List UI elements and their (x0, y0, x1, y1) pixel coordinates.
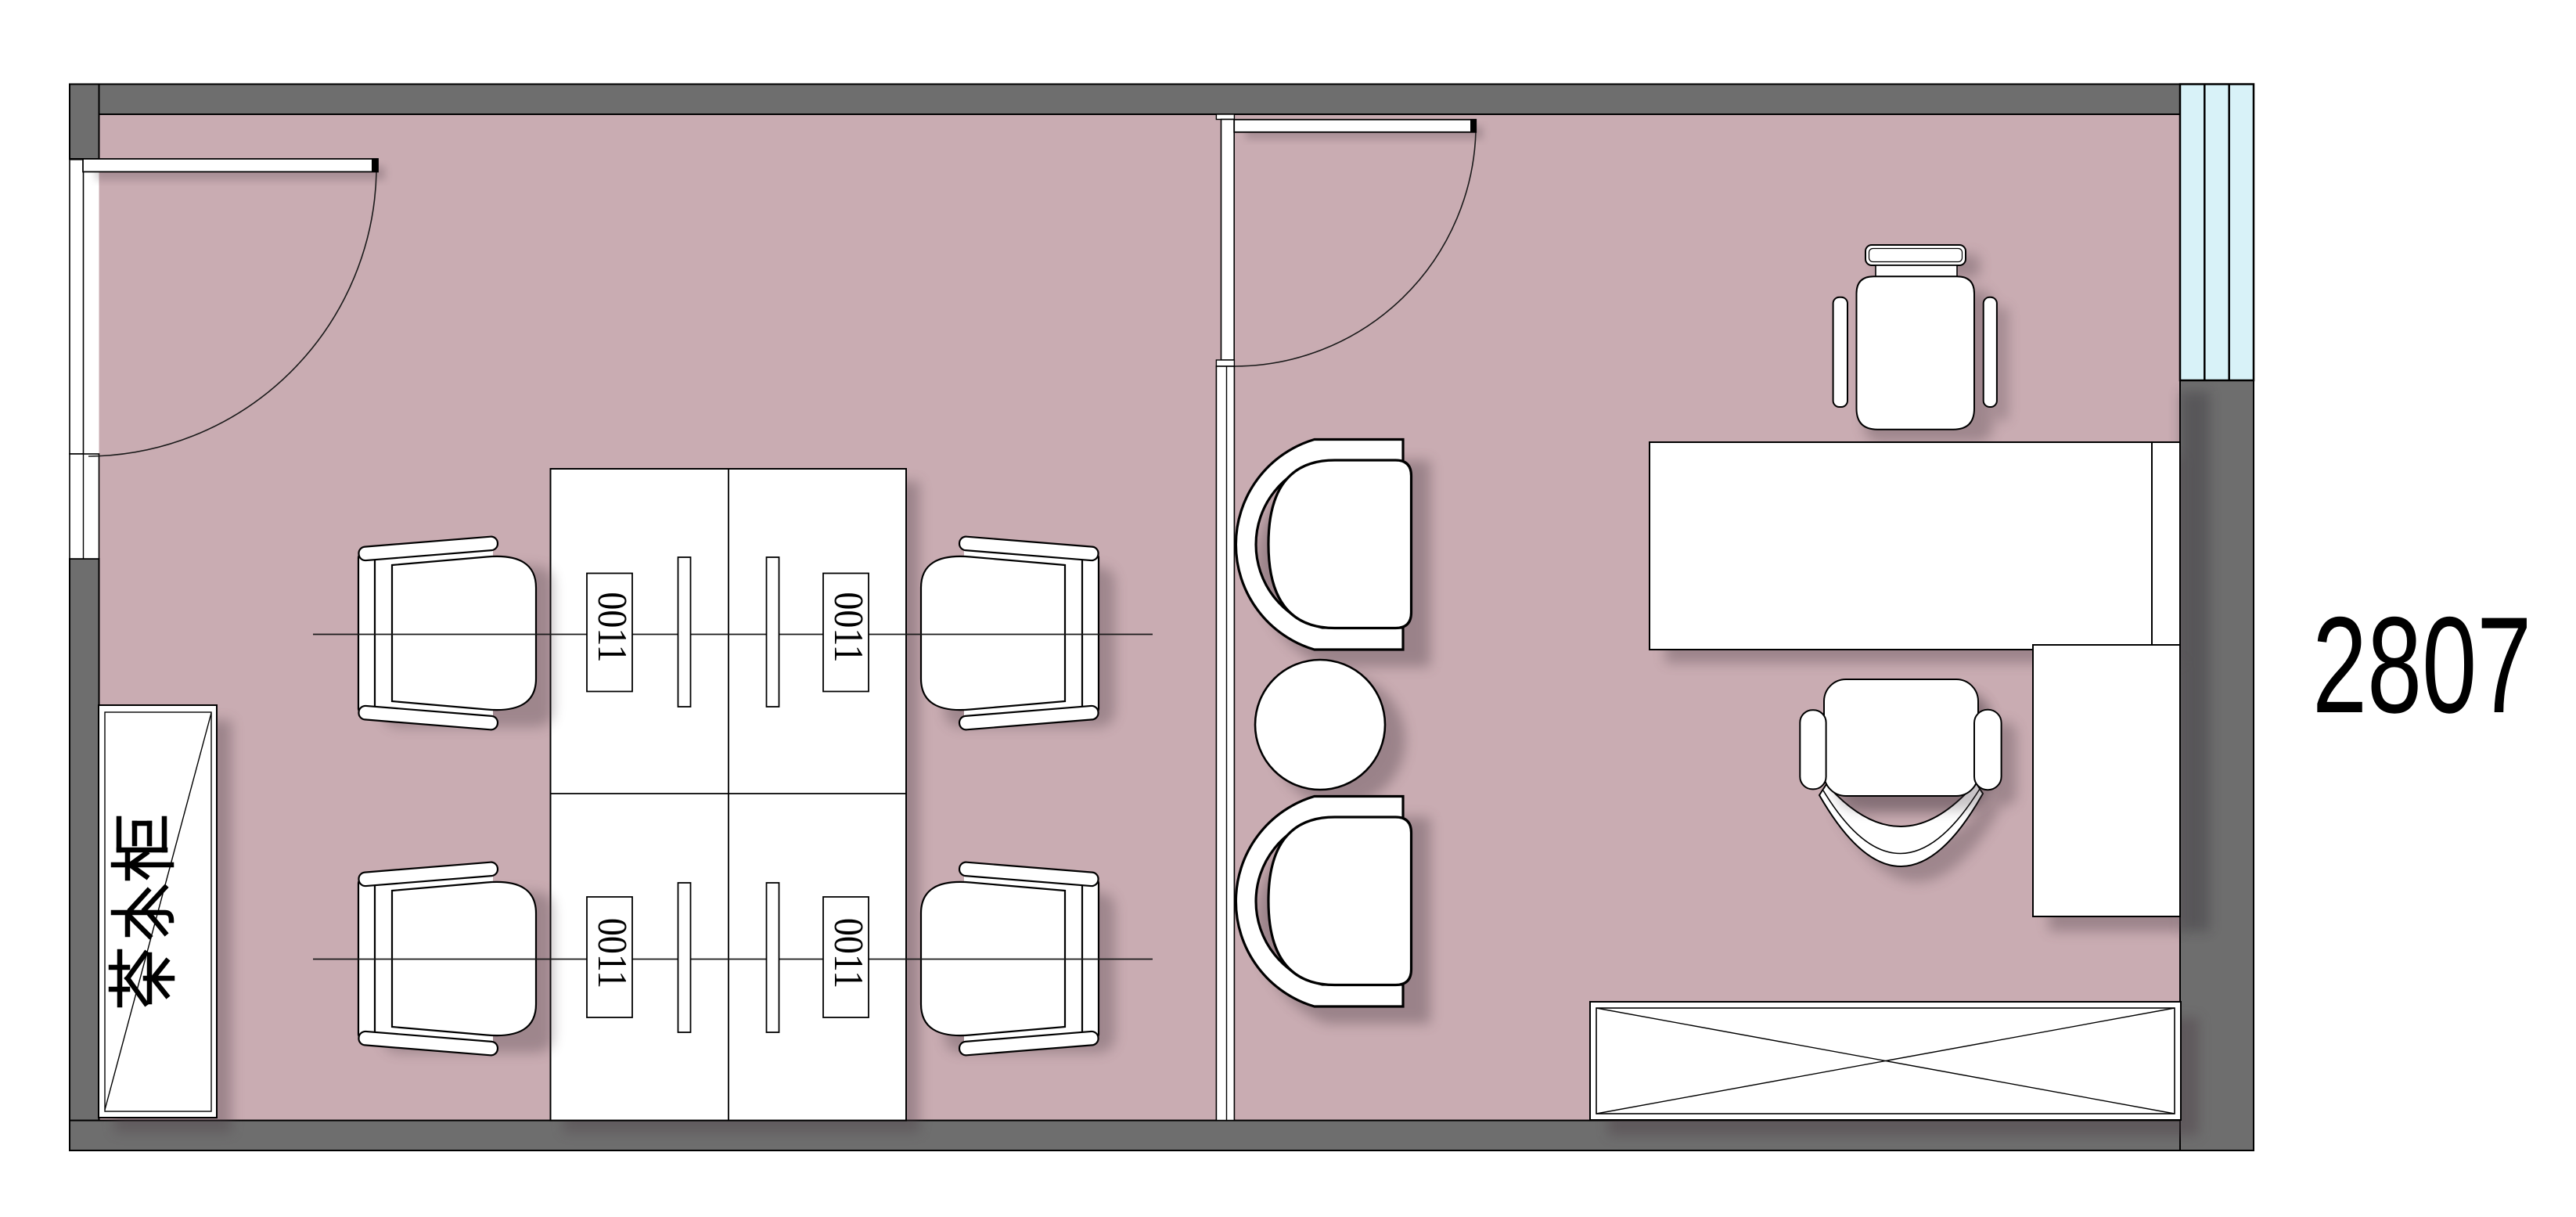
svg-text:2807: 2807 (2312, 589, 2531, 742)
svg-text:0011: 0011 (589, 592, 635, 662)
svg-text:0011: 0011 (589, 918, 635, 988)
svg-text:0011: 0011 (826, 918, 872, 988)
svg-text:0011: 0011 (826, 592, 872, 662)
